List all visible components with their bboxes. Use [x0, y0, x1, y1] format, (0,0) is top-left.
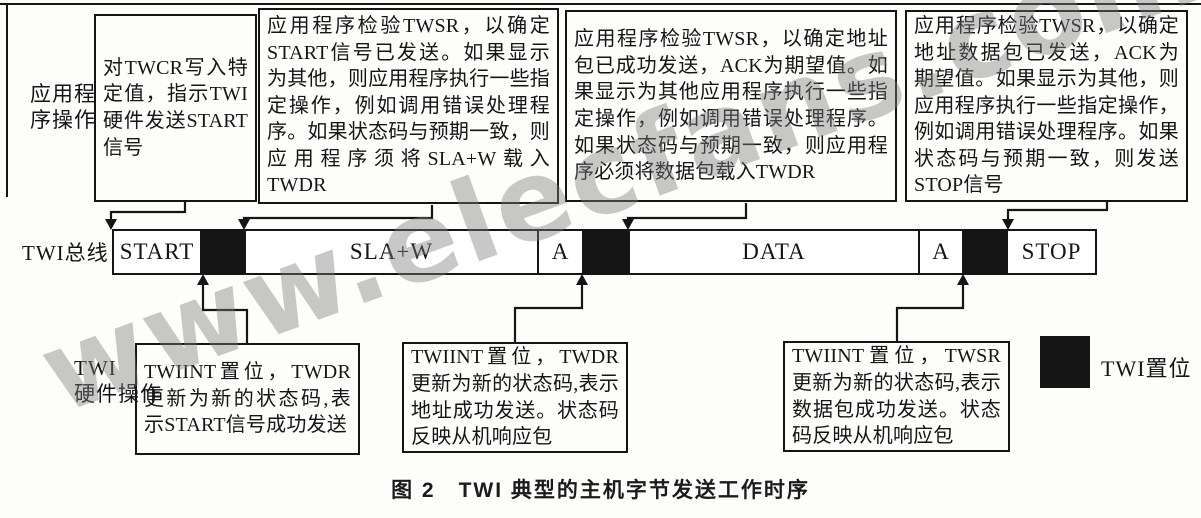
app-box-check-address: 应用程序检验TWSR，以确定地址包已成功发送，ACK为期望值。如果显示为其他应用… [565, 10, 897, 202]
app-box-write-twcr-text: 对TWCR写入特定值，指示TWI硬件发送START信号 [103, 55, 248, 161]
legend-twi-set-label: TWI置位 [1101, 351, 1192, 383]
app-box-check-data: 应用程序检验TWSR，以确定地址数据包已发送，ACK为期望值。如果显示为其他，则… [905, 10, 1188, 202]
bus-segment-ack-2: A [918, 231, 962, 273]
connector-app2-to-slaw [244, 205, 432, 220]
connector-app4-to-stop [1008, 200, 1107, 220]
arrowhead-up-1 [197, 274, 209, 285]
hw-box-start-sent: TWIINT置位，TWDR更新为新的状态码,表示START信号成功发送 [135, 343, 360, 455]
app-box-check-start-text: 应用程序检验TWSR，以确定START信号已发送。如果显示为其他，则应用程序执行… [267, 13, 550, 199]
bus-segment-stop: STOP [1008, 231, 1095, 273]
legend-twi-set-swatch [1040, 336, 1090, 388]
connector-app1-to-start [111, 202, 185, 220]
hw-box-address-sent-text: TWIINT置位，TWDR更新为新的状态码,表示地址成功发送。状态码反映从机响应… [411, 344, 619, 450]
row-label-twi-bus: TWI总线 [22, 241, 109, 267]
hw-box-address-sent: TWIINT置位，TWDR更新为新的状态码,表示地址成功发送。状态码反映从机响应… [402, 342, 628, 453]
bus-segment-data: DATA [630, 231, 918, 273]
bus-segment-start: START [114, 231, 200, 273]
app-box-check-address-text: 应用程序检验TWSR，以确定地址包已成功发送，ACK为期望值。如果显示为其他应用… [574, 26, 888, 186]
bus-segment-twi-set-1 [200, 231, 246, 273]
bus-segment-ack-1: A [537, 231, 582, 273]
connector-app3-to-data [628, 203, 746, 220]
row-label-application-line2: 序操作 [30, 108, 96, 134]
twi-bus-strip: START SLA+W A DATA A STOP [112, 229, 1097, 275]
app-box-check-start: 应用程序检验TWSR，以确定START信号已发送。如果显示为其他，则应用程序执行… [258, 8, 559, 204]
figure-twi-timing-diagram: www.elecfans.com 应用程 序操作 TWI总线 TWI 硬件操作 … [0, 0, 1201, 518]
row-label-application-line1: 应用程 [30, 82, 96, 108]
hw-box-start-sent-text: TWIINT置位，TWDR更新为新的状态码,表示START信号成功发送 [144, 359, 351, 439]
arrowhead-up-3 [957, 274, 969, 285]
hw-box-data-sent: TWIINT置位，TWSR更新为新的状态码,表示数据包成功发送。状态码反映从机响… [783, 341, 1010, 452]
app-box-write-twcr: 对TWCR写入特定值，指示TWI硬件发送START信号 [94, 14, 257, 202]
hw-box-data-sent-text: TWIINT置位，TWSR更新为新的状态码,表示数据包成功发送。状态码反映从机响… [792, 343, 1001, 449]
app-box-check-data-text: 应用程序检验TWSR，以确定地址数据包已发送，ACK为期望值。如果显示为其他，则… [914, 13, 1179, 199]
bus-segment-twi-set-3 [962, 231, 1008, 273]
connector-bus-to-hw2 [515, 283, 582, 342]
connector-bus-to-hw1 [203, 283, 247, 343]
bus-segment-twi-set-2 [582, 231, 630, 273]
left-edge-rule [6, 3, 8, 197]
connector-bus-to-hw3 [897, 283, 963, 341]
row-label-application: 应用程 序操作 [30, 82, 96, 133]
arrowhead-up-2 [576, 274, 588, 285]
figure-caption: 图 2 TWI 典型的主机字节发送工作时序 [0, 474, 1201, 504]
top-rule [0, 3, 1201, 5]
bus-segment-sla-w: SLA+W [246, 231, 537, 273]
